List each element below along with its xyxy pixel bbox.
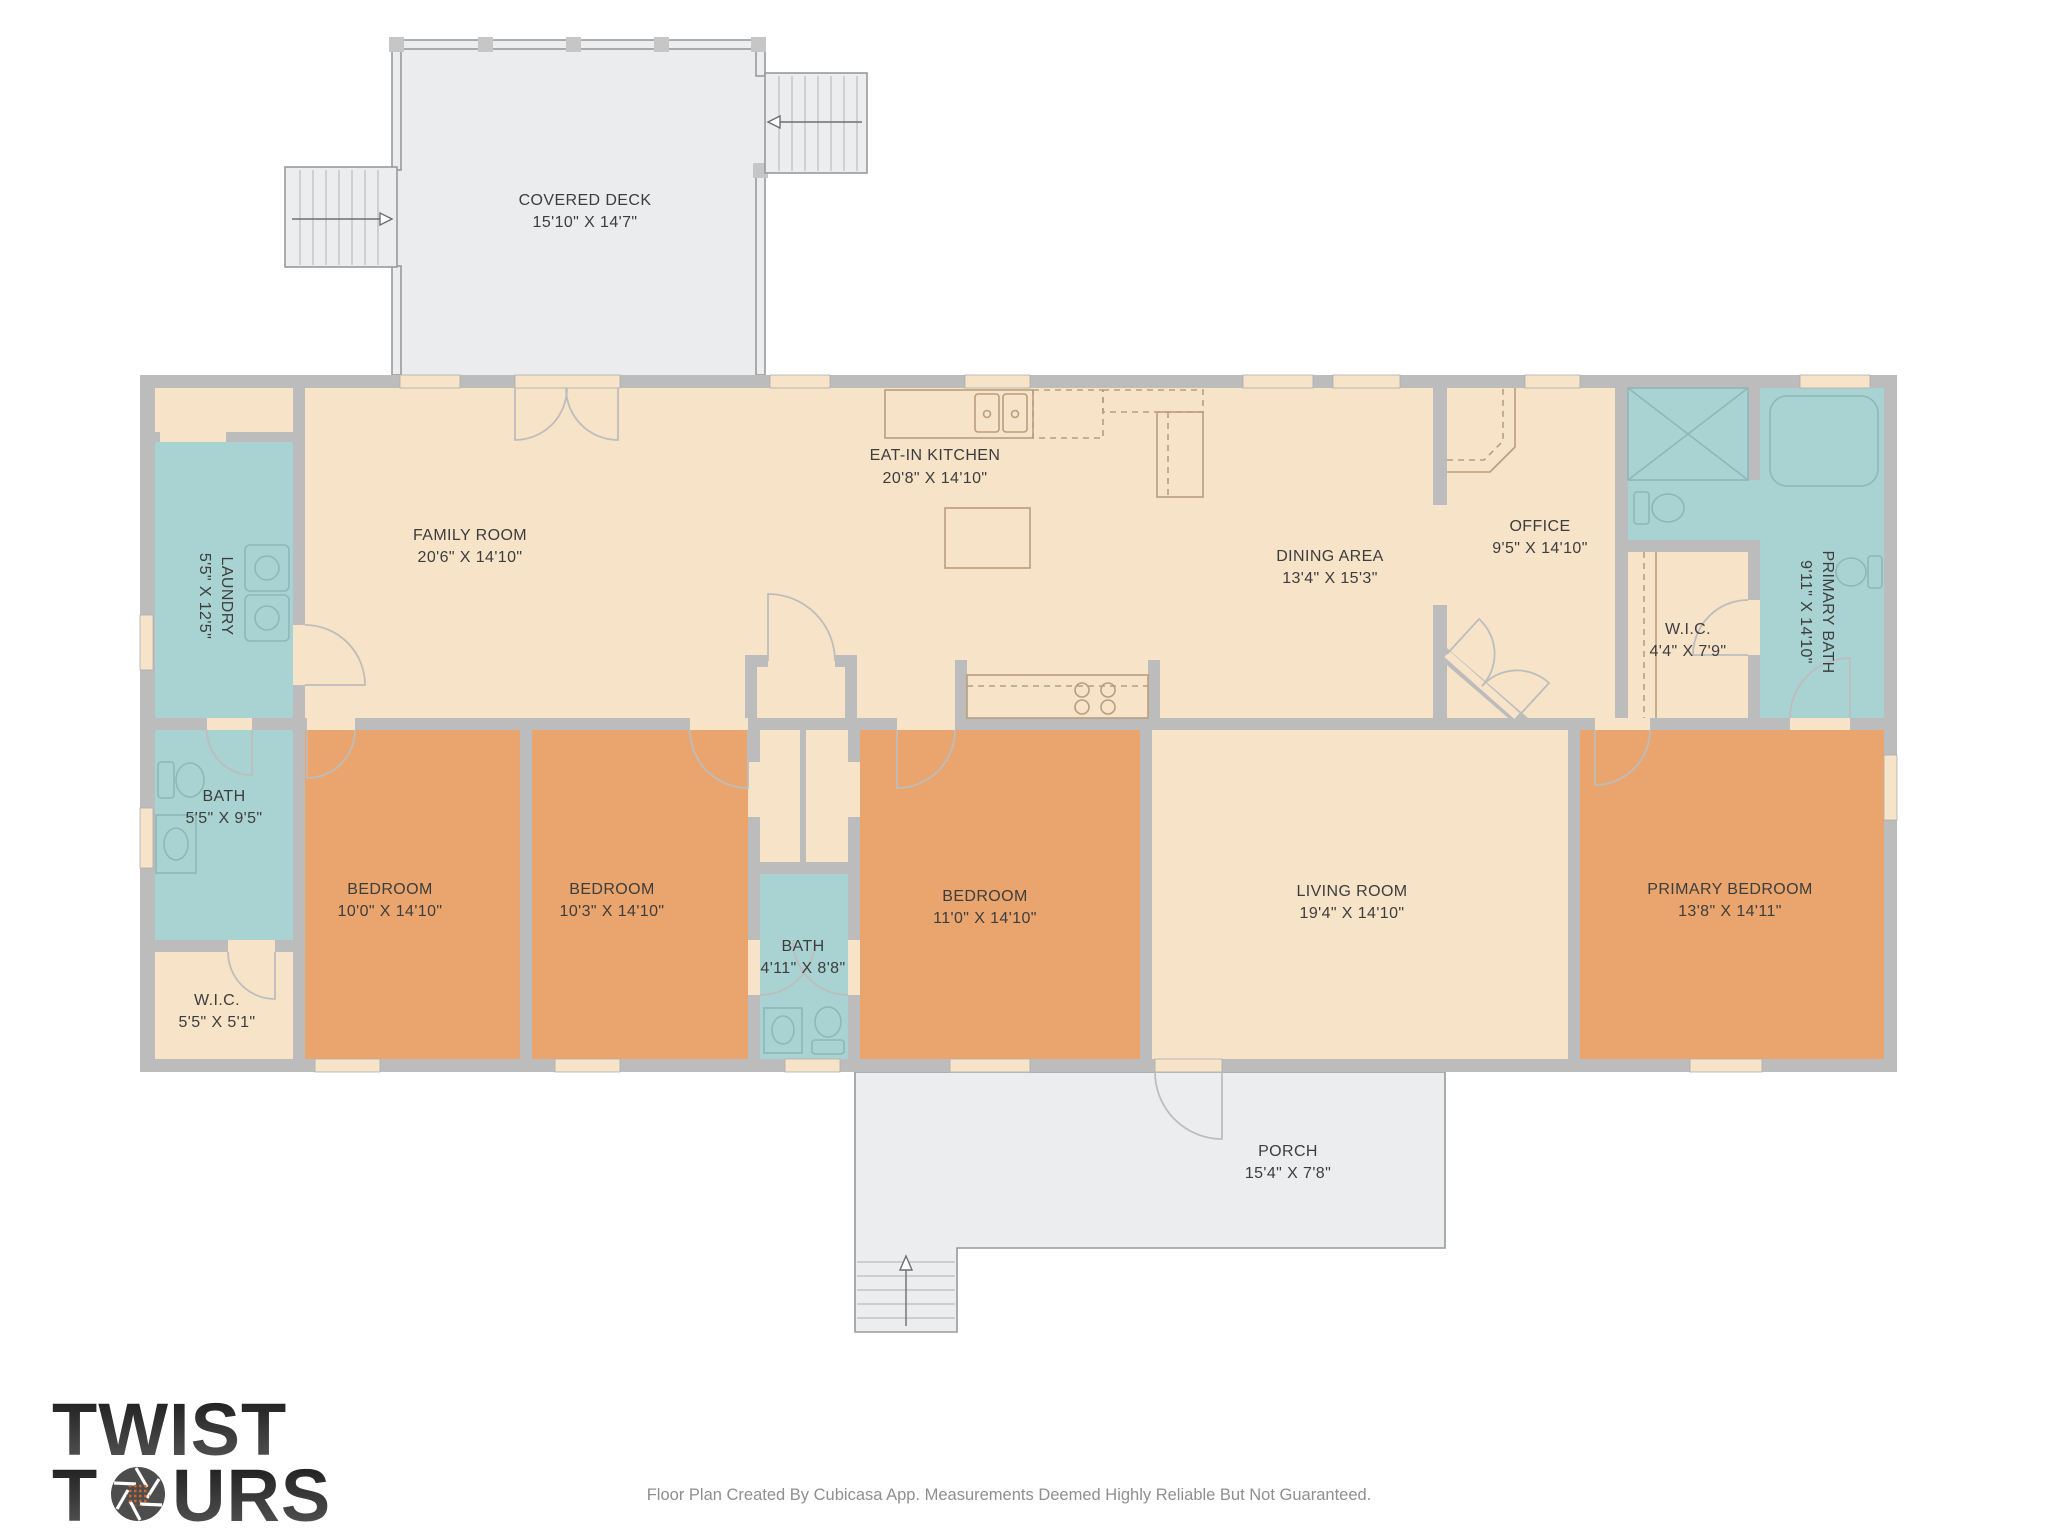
hall-bath-floor	[155, 730, 293, 940]
deck-door-opening	[515, 375, 620, 388]
svg-text:11'0" X 14'10": 11'0" X 14'10"	[933, 910, 1037, 927]
svg-text:5'5" X 12'5": 5'5" X 12'5"	[196, 553, 213, 639]
deck-right-rail-b	[756, 171, 765, 375]
twist-tours-logo: TWIST T URS	[52, 1388, 331, 1536]
deck-left-rail-a	[392, 48, 401, 170]
svg-text:13'4" X 15'3": 13'4" X 15'3"	[1282, 570, 1378, 587]
deck-right-rail-a	[756, 48, 765, 76]
svg-text:5'5" X 5'1": 5'5" X 5'1"	[178, 1014, 255, 1031]
svg-text:LAUNDRY: LAUNDRY	[218, 557, 235, 636]
closet-a-floor	[760, 730, 800, 862]
svg-text:20'8" X 14'10": 20'8" X 14'10"	[883, 470, 988, 487]
svg-text:DINING AREA: DINING AREA	[1276, 548, 1384, 565]
closet-b-floor	[806, 730, 848, 862]
svg-text:EAT-IN KITCHEN: EAT-IN KITCHEN	[870, 447, 1001, 464]
svg-text:BEDROOM: BEDROOM	[347, 881, 432, 898]
svg-text:BEDROOM: BEDROOM	[942, 888, 1027, 905]
svg-text:W.I.C.: W.I.C.	[1665, 621, 1711, 638]
logo-line2-t: T	[52, 1454, 98, 1536]
svg-text:BATH: BATH	[781, 938, 824, 955]
svg-text:BATH: BATH	[202, 788, 245, 805]
svg-text:13'8" X 14'11": 13'8" X 14'11"	[1678, 903, 1782, 920]
deck-left-rail-b	[392, 266, 401, 375]
floor-plan-page: COVERED DECK15'10" X 14'7" FAMILY ROOM20…	[0, 0, 2048, 1536]
svg-text:BEDROOM: BEDROOM	[569, 881, 654, 898]
svg-text:COVERED DECK: COVERED DECK	[519, 192, 652, 209]
svg-text:PRIMARY BEDROOM: PRIMARY BEDROOM	[1647, 881, 1812, 898]
entry-nook-floor	[155, 388, 293, 432]
svg-text:4'4" X 7'9": 4'4" X 7'9"	[1649, 643, 1726, 660]
svg-text:9'5" X 14'10": 9'5" X 14'10"	[1492, 540, 1588, 557]
svg-text:20'6" X 14'10": 20'6" X 14'10"	[418, 549, 523, 566]
svg-text:5'5" X 9'5": 5'5" X 9'5"	[185, 810, 262, 827]
footer-disclaimer: Floor Plan Created By Cubicasa App. Meas…	[647, 1486, 1372, 1504]
porch	[855, 1072, 1445, 1332]
deck-stairs-left	[285, 167, 397, 267]
svg-text:19'4" X 14'10": 19'4" X 14'10"	[1300, 905, 1405, 922]
svg-text:9'11" X 14'10": 9'11" X 14'10"	[1797, 560, 1814, 664]
floor-plan-canvas: COVERED DECK15'10" X 14'7" FAMILY ROOM20…	[0, 0, 2048, 1536]
porch-door-opening	[1155, 1059, 1222, 1072]
svg-text:LIVING ROOM: LIVING ROOM	[1296, 883, 1407, 900]
aperture-icon	[111, 1467, 165, 1521]
porch-floor	[855, 1072, 1445, 1332]
svg-text:10'0" X 14'10": 10'0" X 14'10"	[338, 903, 443, 920]
logo-line2-urs: URS	[172, 1454, 331, 1536]
deck-floor	[396, 45, 765, 375]
svg-text:FAMILY ROOM: FAMILY ROOM	[413, 527, 527, 544]
svg-text:15'10" X 14'7": 15'10" X 14'7"	[533, 214, 638, 231]
svg-text:PORCH: PORCH	[1258, 1143, 1318, 1160]
svg-text:10'3" X 14'10": 10'3" X 14'10"	[560, 903, 665, 920]
svg-text:15'4" X 7'8": 15'4" X 7'8"	[1245, 1165, 1331, 1182]
svg-text:4'11" X 8'8": 4'11" X 8'8"	[760, 960, 845, 977]
svg-text:PRIMARY BATH: PRIMARY BATH	[1819, 550, 1836, 673]
deck-stairs-right	[765, 73, 867, 173]
svg-text:OFFICE: OFFICE	[1509, 518, 1570, 535]
svg-text:W.I.C.: W.I.C.	[194, 992, 240, 1009]
